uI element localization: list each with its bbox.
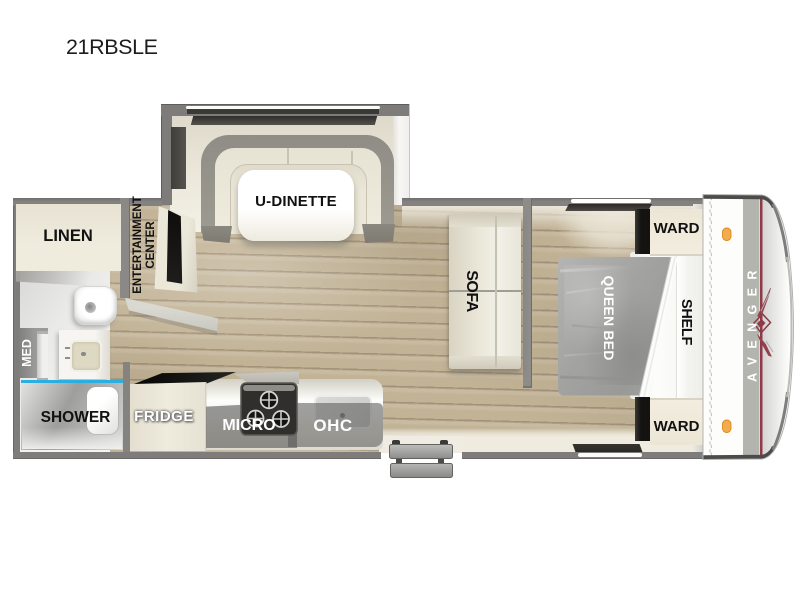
- svg-text:AVENGER: AVENGER: [746, 262, 760, 382]
